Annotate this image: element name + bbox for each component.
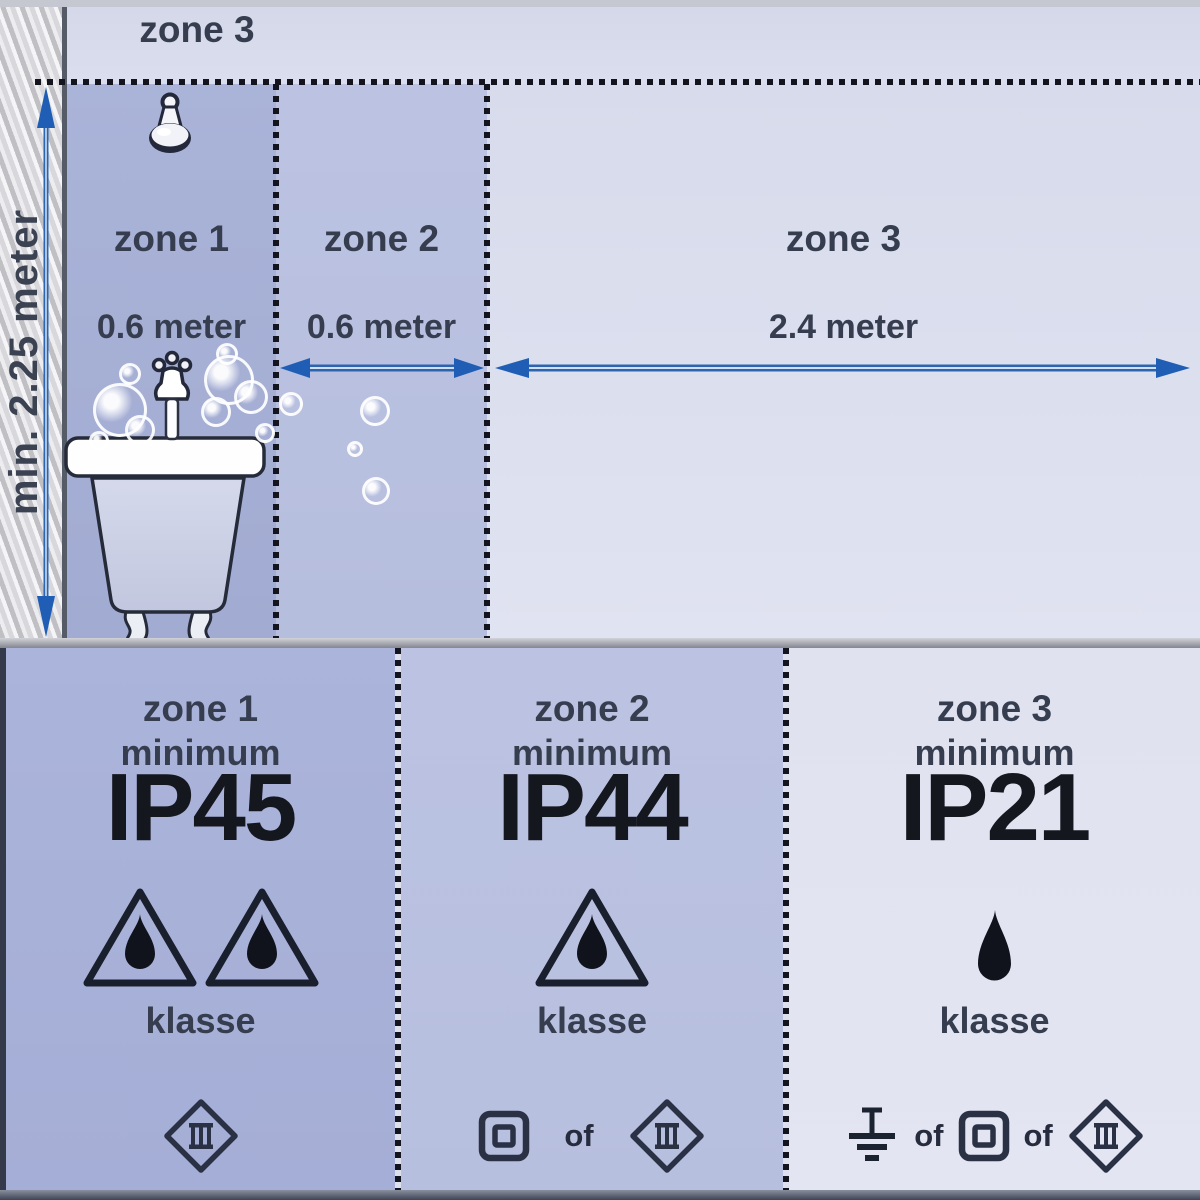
panel3-zone-label: zone 3 (789, 688, 1200, 730)
panel2-splash-icons (401, 880, 783, 990)
zone3-distance: 2.4 meter (487, 308, 1200, 347)
water-drop-icon (973, 908, 1017, 990)
shower-head-icon (146, 92, 194, 156)
bottom-border (0, 1190, 1200, 1200)
class-iii-diamond-icon (1067, 1097, 1145, 1175)
zone2-distance: 0.6 meter (276, 308, 487, 347)
bubble-icon (347, 441, 363, 457)
bubble-icon (125, 415, 155, 445)
bubble-icon (362, 477, 390, 505)
panel1-ip-rating: IP45 (6, 760, 395, 856)
panel2-klasse-label: klasse (401, 1000, 783, 1042)
panel2-zone-label: zone 2 (401, 688, 783, 730)
bubble-icon (279, 392, 303, 416)
panel3-ip-rating: IP21 (789, 760, 1200, 856)
class-iii-diamond-icon (162, 1097, 240, 1175)
bubble-icon (89, 431, 109, 451)
bathroom-zones-infographic: zone 3 min. 2.25 meter zone 1 0.6 meter (0, 0, 1200, 1200)
top-border (0, 0, 1200, 7)
bubble-icon (360, 396, 390, 426)
floor-divider (0, 638, 1200, 648)
panel1-klasse-label: klasse (6, 1000, 395, 1042)
panel3-or-label: of (914, 1118, 943, 1154)
bottom-left-border (0, 648, 6, 1200)
panel3-drip-icon-row (789, 880, 1200, 990)
panel1-splash-icons (6, 880, 395, 990)
zone2-label: zone 2 (276, 218, 487, 260)
zone1-label: zone 1 (67, 218, 276, 260)
panel3-class-icons: of of (789, 1088, 1200, 1184)
water-drop-triangle-icon (81, 884, 199, 990)
panel3-klasse-label: klasse (789, 1000, 1200, 1042)
bubble-icon (201, 397, 231, 427)
bubble-icon (234, 380, 268, 414)
panel-zone3: zone 3 minimum IP21 klasse of of (789, 648, 1200, 1190)
water-drop-triangle-icon (533, 884, 651, 990)
overhead-zone-label: zone 3 (67, 9, 327, 51)
class-ii-square-icon (478, 1110, 530, 1162)
zone3-width-arrow (494, 355, 1191, 381)
panel2-ip-rating: IP44 (401, 760, 783, 856)
zone3-label: zone 3 (487, 218, 1200, 260)
panel-zone1: zone 1 minimum IP45 klasse (6, 648, 395, 1190)
panel3-or-label-2: of (1024, 1118, 1053, 1154)
panel1-panel2-dashed-line (395, 648, 401, 1200)
zone1-distance: 0.6 meter (67, 308, 276, 347)
panel1-class-icons (6, 1088, 395, 1184)
height-label: min. 2.25 meter (0, 102, 49, 622)
panel2-class-icons: of (401, 1088, 783, 1184)
panel-zone2: zone 2 minimum IP44 klasse of (401, 648, 783, 1190)
class-iii-diamond-icon (628, 1097, 706, 1175)
zone2-width-arrow (279, 355, 485, 381)
bubble-icon (255, 423, 275, 443)
panel1-zone-label: zone 1 (6, 688, 395, 730)
zone-top-dashed-line (35, 79, 1200, 85)
bathtub-icon (62, 428, 274, 646)
earth-ground-icon (844, 1105, 900, 1167)
class-ii-square-icon (958, 1110, 1010, 1162)
bubble-icon (119, 363, 141, 385)
panel2-panel3-dashed-line (783, 648, 789, 1200)
water-drop-triangle-icon (203, 884, 321, 990)
panel2-or-label: of (564, 1118, 593, 1154)
